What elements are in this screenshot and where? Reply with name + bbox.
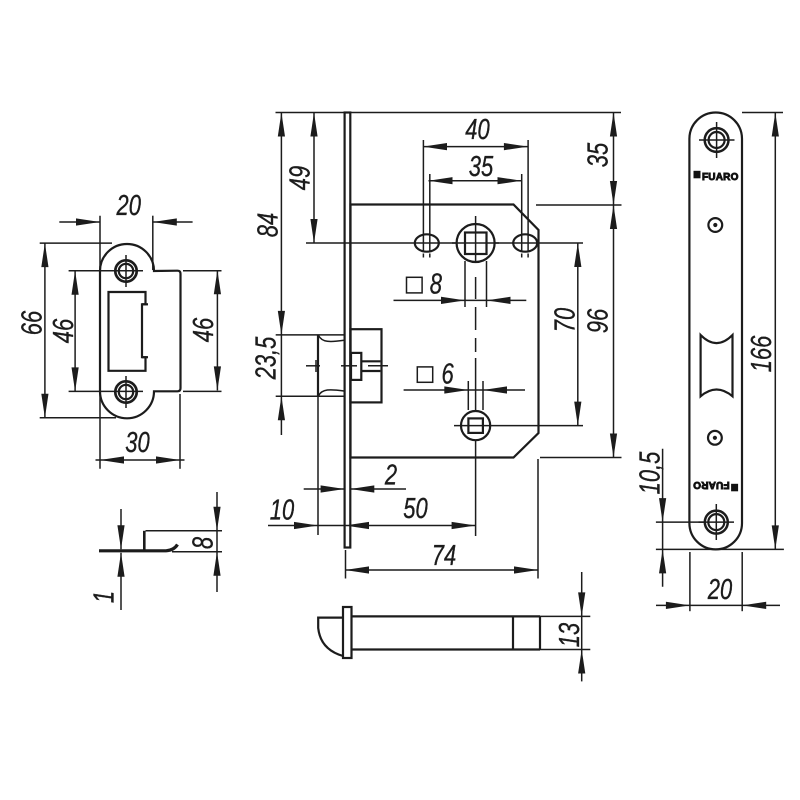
svg-text:23,5: 23,5 xyxy=(251,336,282,380)
svg-text:50: 50 xyxy=(403,493,427,524)
svg-text:10: 10 xyxy=(270,495,294,526)
svg-text:70: 70 xyxy=(550,308,581,332)
svg-text:10,5: 10,5 xyxy=(635,451,666,494)
svg-text:46: 46 xyxy=(188,317,219,342)
svg-text:20: 20 xyxy=(707,574,732,605)
svg-text:40: 40 xyxy=(465,114,489,145)
svg-text:FUARO: FUARO xyxy=(702,172,739,183)
svg-text:2: 2 xyxy=(384,460,397,491)
svg-text:8: 8 xyxy=(188,537,219,549)
svg-text:84: 84 xyxy=(253,213,284,237)
svg-text:1: 1 xyxy=(89,591,120,603)
svg-text:20: 20 xyxy=(116,190,141,221)
svg-text:66: 66 xyxy=(17,310,48,335)
svg-text:13: 13 xyxy=(554,623,585,647)
svg-text:74: 74 xyxy=(432,540,456,571)
svg-text:FUARO: FUARO xyxy=(693,479,730,490)
svg-text:35: 35 xyxy=(469,151,494,182)
svg-text:46: 46 xyxy=(48,318,79,343)
svg-text:30: 30 xyxy=(125,427,149,458)
svg-text:49: 49 xyxy=(285,166,316,190)
svg-text:96: 96 xyxy=(583,308,614,333)
svg-text:6: 6 xyxy=(442,359,455,390)
svg-text:35: 35 xyxy=(583,142,614,167)
svg-text:166: 166 xyxy=(746,335,777,372)
svg-text:8: 8 xyxy=(430,269,442,300)
